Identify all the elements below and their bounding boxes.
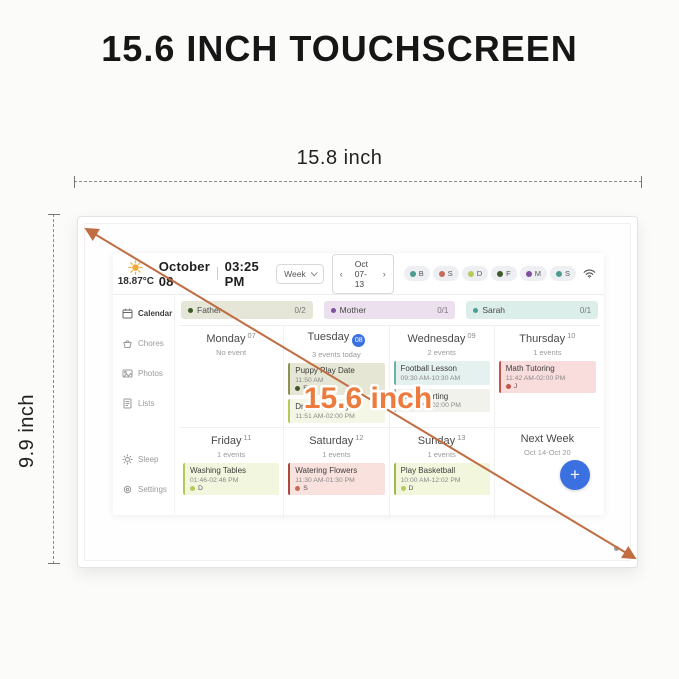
avatar-dot: [556, 271, 562, 277]
width-dimension-label: 15.8 inch: [0, 147, 679, 170]
person-dot: [190, 486, 195, 491]
event-time: 11:50 AM: [295, 377, 379, 384]
day-cell-tuesday[interactable]: Tuesday08 3 events today Puppy Play Date…: [284, 326, 389, 428]
sleep-icon: [122, 454, 133, 465]
chore-pill-sarah[interactable]: Sarah 0/1: [466, 301, 598, 319]
avatar-initial: B: [419, 269, 424, 278]
device-frame: 18.87°C October 08 03:25 PM Week ‹ Oct 0…: [77, 216, 638, 568]
day-header: Next Week: [495, 433, 600, 445]
event-title: Watering Flowers: [295, 466, 379, 475]
avatar-dot: [410, 271, 416, 277]
person-dot: [295, 486, 300, 491]
camera-dot: [614, 546, 619, 551]
chore-count: 0/2: [295, 306, 306, 315]
headline: 15.6 INCH TOUCHSCREEN: [0, 28, 679, 70]
view-label: Week: [284, 269, 306, 279]
event-title: Drying Laundry: [295, 402, 379, 411]
avatar-initial: F: [506, 269, 511, 278]
sidebar-item-calendar[interactable]: Calendar: [113, 303, 174, 323]
width-dimension-line: [74, 181, 642, 182]
event-title: Football Lesson: [401, 364, 485, 373]
calendar-app: 18.87°C October 08 03:25 PM Week ‹ Oct 0…: [113, 253, 604, 515]
event-card[interactable]: Watering Flowers 11:30 AM-01:30 PM S: [288, 463, 384, 495]
day-header: Monday07: [179, 331, 283, 345]
event-card[interactable]: Football Lesson 09:30 AM-10:30 AM: [394, 361, 490, 385]
event-card[interactable]: Trash Sorting 01:00 PM-02:00 PM: [394, 389, 490, 413]
calendar-main: Father 0/2 Mother 0/1 Sarah 0/1: [175, 295, 604, 514]
day-cell-friday[interactable]: Friday11 1 events Washing Tables 01:46-0…: [179, 428, 284, 519]
day-header: Sunday13: [390, 433, 494, 447]
person-initial: F: [303, 385, 307, 392]
datetime-divider: [217, 267, 218, 280]
today-badge: 08: [352, 334, 365, 347]
person-initial: S: [303, 485, 308, 492]
chore-pill-father[interactable]: Father 0/2: [181, 301, 313, 319]
date-range-nav: ‹ Oct 07-13 ›: [332, 254, 394, 294]
avatar-initial: S: [448, 269, 453, 278]
add-event-button[interactable]: +: [560, 460, 590, 490]
view-selector[interactable]: Week: [276, 264, 324, 284]
settings-icon: [122, 484, 133, 495]
event-title: Puppy Play Date: [295, 366, 379, 375]
event-title: Trash Sorting: [401, 392, 485, 401]
event-title: Play Basketball: [401, 466, 485, 475]
datetime: October 08 03:25 PM: [159, 259, 264, 289]
current-time: 03:25 PM: [225, 259, 264, 289]
avatar-chip[interactable]: S: [433, 266, 459, 281]
day-header: Thursday10: [495, 331, 600, 345]
person-initial: J: [514, 383, 517, 390]
chore-count: 0/1: [437, 306, 448, 315]
chores-icon: [122, 338, 133, 349]
person-dot: [331, 308, 336, 313]
sidebar-label: Settings: [138, 485, 167, 494]
photos-icon: [122, 368, 133, 379]
sidebar-item-photos[interactable]: Photos: [113, 363, 174, 383]
sidebar-label: Photos: [138, 369, 163, 378]
day-header: Friday11: [179, 433, 283, 447]
event-title: Math Tutoring: [506, 364, 591, 373]
weather-widget: 18.87°C: [113, 260, 159, 287]
chores-row: Father 0/2 Mother 0/1 Sarah 0/1: [179, 301, 600, 319]
day-cell-thursday[interactable]: Thursday10 1 events Math Tutoring 11:42 …: [495, 326, 600, 428]
event-time: 10:00 AM-12:02 PM: [401, 477, 485, 484]
day-subtext: 1 events: [495, 348, 600, 357]
next-week-button[interactable]: ›: [376, 265, 393, 283]
person-dot: [473, 308, 478, 313]
chore-count: 0/1: [580, 306, 591, 315]
avatar-dot: [497, 271, 503, 277]
person-dot: [295, 386, 300, 391]
avatar-dot: [439, 271, 445, 277]
avatar-initial: D: [477, 269, 482, 278]
chore-pill-mother[interactable]: Mother 0/1: [324, 301, 456, 319]
person-dot: [188, 308, 193, 313]
sidebar-item-settings[interactable]: Settings: [113, 479, 174, 499]
person-initial: D: [409, 485, 414, 492]
lists-icon: [122, 398, 133, 409]
avatar-chip[interactable]: F: [491, 266, 517, 281]
wifi-icon: [583, 268, 596, 279]
day-header: Wednesday09: [390, 331, 494, 345]
device-screen: 18.87°C October 08 03:25 PM Week ‹ Oct 0…: [84, 223, 631, 561]
sidebar-item-sleep[interactable]: Sleep: [113, 449, 174, 469]
event-card[interactable]: Play Basketball 10:00 AM-12:02 PM D: [394, 463, 490, 495]
day-subtext: 1 events: [390, 450, 494, 459]
sun-icon: [127, 260, 144, 275]
event-time: 09:30 AM-10:30 AM: [401, 375, 485, 382]
week-grid: Monday07 No event Tuesday08 3 events tod…: [179, 325, 600, 519]
day-header: Tuesday08: [284, 331, 388, 347]
avatar-chip[interactable]: B: [404, 266, 430, 281]
sidebar-label: Lists: [138, 399, 154, 408]
avatar-dot: [526, 271, 532, 277]
event-time: 11:51 AM-02:00 PM: [295, 413, 379, 420]
day-subtext: No event: [179, 348, 283, 357]
event-time: 11:30 AM-01:30 PM: [295, 477, 379, 484]
avatar-chip[interactable]: S: [550, 266, 576, 281]
sidebar-label: Calendar: [138, 309, 172, 318]
day-header: Saturday12: [284, 433, 388, 447]
person-initial: D: [198, 485, 203, 492]
event-card[interactable]: Drying Laundry 11:51 AM-02:00 PM: [288, 399, 384, 423]
day-cell-sunday[interactable]: Sunday13 1 events Play Basketball 10:00 …: [390, 428, 495, 519]
avatar-filter-row: B S D F M S: [404, 266, 576, 281]
sidebar-label: Sleep: [138, 455, 158, 464]
event-card[interactable]: Washing Tables 01:46-02:46 PM D: [183, 463, 279, 495]
day-cell-next-week[interactable]: Next Week Oct 14-Oct 20 +: [495, 428, 600, 519]
temperature: 18.87°C: [118, 276, 154, 287]
day-subtext: 1 events: [284, 450, 388, 459]
avatar-chip[interactable]: D: [462, 266, 488, 281]
height-dimension-label: 9.9 inch: [16, 308, 39, 468]
day-subtext: 2 events: [390, 348, 494, 357]
day-subtext: Oct 14-Oct 20: [495, 448, 600, 457]
sidebar-spacer: [113, 423, 174, 449]
sidebar-label: Chores: [138, 339, 164, 348]
sidebar-item-lists[interactable]: Lists: [113, 393, 174, 413]
app-body: Calendar Chores Photos Lists: [113, 295, 604, 514]
current-date: October 08: [159, 259, 210, 289]
day-cell-wednesday[interactable]: Wednesday09 2 events Football Lesson 09:…: [390, 326, 495, 428]
app-header: 18.87°C October 08 03:25 PM Week ‹ Oct 0…: [113, 253, 604, 295]
event-card[interactable]: Math Tutoring 11:42 AM-02:00 PM J: [499, 361, 596, 393]
avatar-initial: M: [535, 269, 541, 278]
person-dot: [401, 486, 406, 491]
day-cell-monday[interactable]: Monday07 No event: [179, 326, 284, 428]
avatar-initial: S: [565, 269, 570, 278]
chore-name: Mother: [340, 305, 366, 315]
avatar-dot: [468, 271, 474, 277]
person-dot: [506, 384, 511, 389]
chore-name: Father: [197, 305, 222, 315]
date-range: Oct 07-13: [350, 255, 376, 293]
chevron-down-icon: [310, 269, 317, 276]
event-card[interactable]: Puppy Play Date 11:50 AM F: [288, 363, 384, 395]
height-dimension-line: [53, 214, 54, 564]
chore-name: Sarah: [482, 305, 505, 315]
sidebar: Calendar Chores Photos Lists: [113, 295, 175, 514]
sidebar-item-chores[interactable]: Chores: [113, 333, 174, 353]
prev-week-button[interactable]: ‹: [333, 265, 350, 283]
event-time: 01:46-02:46 PM: [190, 477, 274, 484]
day-subtext: 1 events: [179, 450, 283, 459]
day-subtext: 3 events today: [284, 350, 388, 359]
event-time: 11:42 AM-02:00 PM: [506, 375, 591, 382]
calendar-icon: [122, 308, 133, 319]
avatar-chip[interactable]: M: [520, 266, 547, 281]
day-cell-saturday[interactable]: Saturday12 1 events Watering Flowers 11:…: [284, 428, 389, 519]
event-time: 01:00 PM-02:00 PM: [401, 402, 485, 409]
event-title: Washing Tables: [190, 466, 274, 475]
